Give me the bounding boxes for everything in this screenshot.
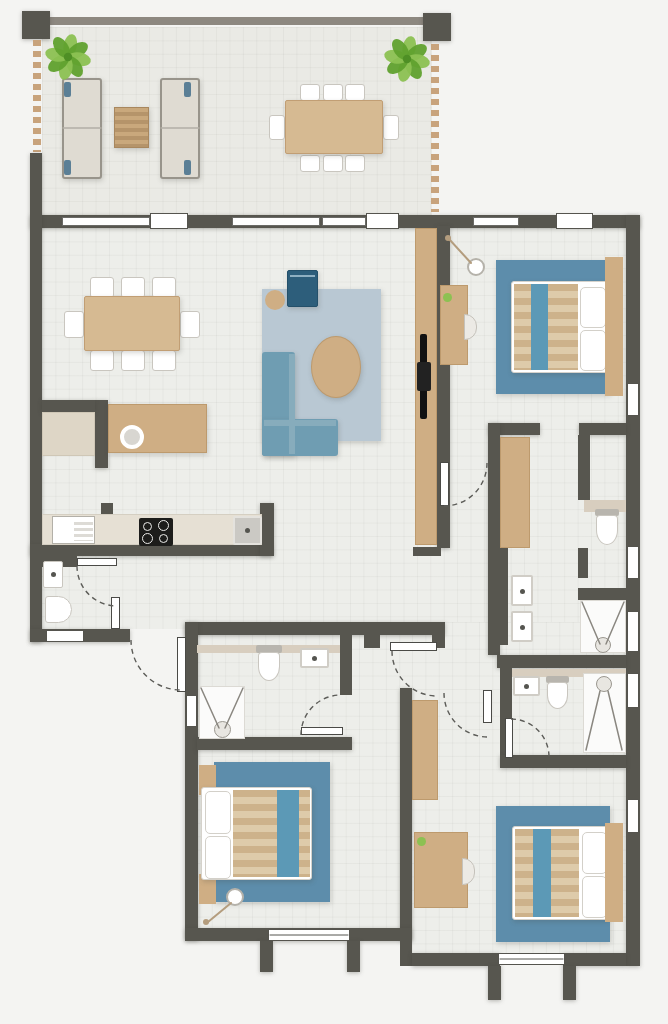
bathroom1-shower-head (595, 637, 611, 653)
terrace-dining-chair-6 (345, 155, 365, 172)
terrace-dining-table (285, 100, 383, 154)
dining-chair-5 (121, 350, 145, 371)
sofa-cushion-edge-horizontal (264, 420, 336, 426)
bedroom3-headboard (605, 823, 623, 922)
dining-chair-2 (121, 277, 145, 298)
outdoor-sofa-right-pillow-bottom (184, 160, 191, 175)
bedroom1-pillow-2 (580, 330, 606, 371)
lower-wing-left-wall (185, 622, 198, 940)
terrace-dining-chair-1 (300, 84, 320, 101)
dining-chair-left (64, 311, 84, 338)
terrace-railing-left-dashed (33, 40, 41, 152)
porch-stub-3 (488, 966, 501, 1000)
left-wall (30, 153, 42, 642)
window-2 (366, 213, 399, 229)
glazing-4 (473, 217, 519, 226)
bedroom3-throw (533, 829, 551, 917)
counter-end-wall (260, 503, 274, 556)
bathroom1-toilet (596, 515, 618, 545)
outdoor-sofa-left-pillow-top (64, 82, 71, 97)
terrace-dining-chair-5 (323, 155, 343, 172)
porch-stub-1 (260, 941, 273, 972)
bathroom3-sink-faucet (524, 684, 529, 689)
terrace-top-rail (30, 17, 450, 25)
bedroom1-throw (531, 284, 548, 370)
bathroom1-bottom-wall (497, 655, 626, 668)
bedroom3-wardrobe (412, 700, 438, 800)
bedroom3-door-leaf (483, 690, 492, 723)
wc-toilet (45, 596, 72, 623)
bathroom3-door-leaf (505, 718, 513, 758)
kitchen-l-wall-horizontal (42, 400, 95, 412)
terrace-dining-chair-3 (345, 84, 365, 101)
dining-chair-3 (152, 277, 176, 298)
bathroom1-wc-wall (578, 435, 590, 500)
burner-3 (142, 533, 153, 544)
glazing-3 (322, 217, 366, 226)
terrace-dining-chair-right (383, 115, 399, 140)
bedroom3-bottom-wall-left (412, 953, 500, 966)
dining-chair-6 (152, 350, 176, 371)
bedroom3-pillow-2 (582, 876, 607, 918)
bathroom1-sink-1-faucet (520, 589, 525, 594)
bathroom2-door-leaf (301, 727, 343, 735)
bedroom2-lamp-tip (203, 919, 209, 925)
bedroom2-lamp (226, 888, 244, 906)
entry-door-arc (131, 640, 181, 690)
bedroom1-headboard (605, 257, 623, 396)
terrace-dining-chair-4 (300, 155, 320, 172)
bedroom1-desk-plant (443, 293, 452, 302)
bathroom2-shower-head (214, 721, 231, 738)
window-3 (556, 213, 593, 229)
wc-basin-faucet (51, 572, 56, 577)
bedroom2-right-wall (400, 688, 412, 940)
right-wall (626, 215, 640, 966)
window-right-5 (627, 799, 639, 833)
bathroom2-right-wall (340, 622, 352, 695)
corridor-door-leaf (440, 462, 449, 506)
bedroom3-bottom-wall-right (563, 953, 626, 966)
bathroom3-toilet (547, 682, 568, 709)
dining-chair-1 (90, 277, 114, 298)
tv-mount (417, 362, 431, 391)
bathroom1-closet (500, 437, 530, 548)
sofa-cushion-edge-vertical (289, 354, 295, 454)
bathroom2-sink-faucet (312, 656, 317, 661)
outdoor-sofa-right (160, 78, 200, 179)
bathroom3-bottom-wall (500, 755, 626, 768)
window-wc-bottom (46, 630, 84, 642)
living-coffee-table (311, 336, 361, 398)
bedroom1-lamp-tip (445, 235, 451, 241)
hall-wall-cap (413, 547, 441, 556)
window-entry-left (186, 695, 197, 727)
kitchen-sink-faucet (245, 528, 250, 533)
bedroom3-pillow-1 (582, 832, 607, 874)
terrace-post-left (22, 11, 50, 39)
entry-door-leaf (177, 637, 186, 692)
bathroom1-shower-wall (578, 588, 626, 600)
dining-chair-4 (90, 350, 114, 371)
bedroom2-throw (277, 790, 299, 877)
glazing-1 (62, 217, 150, 226)
bathroom1-wc-pier (578, 548, 588, 578)
burner-2 (158, 520, 169, 531)
terrace-dining-chair-2 (323, 84, 343, 101)
terrace-dining-chair-left (269, 115, 285, 140)
bedroom1-bottom-wall-right (579, 423, 626, 435)
corner-counter (42, 412, 95, 456)
dining-table (84, 296, 180, 351)
burner-1 (143, 522, 152, 531)
bedroom1-lamp (467, 258, 485, 276)
bathroom3-shower-head (596, 676, 612, 692)
burner-4 (159, 534, 168, 543)
wc-door-leaf-open (111, 597, 120, 629)
porch-stub-2 (347, 941, 360, 972)
fridge-vents (74, 519, 93, 541)
bedroom2-pillow-1 (205, 791, 231, 834)
glazing-2 (232, 217, 320, 226)
window-right-1 (627, 383, 639, 416)
bathroom2-toilet (258, 652, 280, 681)
bedroom1-pillow-1 (580, 287, 606, 328)
bedroom2-pillow-2 (205, 836, 231, 879)
terrace-railing-right-dashed (431, 44, 439, 212)
sliding-door-bedroom2 (268, 929, 350, 941)
bathroom1-vanity-wall (500, 545, 508, 645)
outdoor-coffee-table (114, 107, 149, 148)
bedroom3-desk-plant (417, 837, 426, 846)
bathroom1-sink-2-faucet (520, 625, 525, 630)
lower-wing-top-wall (185, 622, 445, 635)
bathroom1-left-wall (488, 423, 500, 655)
outdoor-sofa-left-pillow-bottom (64, 160, 71, 175)
island-sink (120, 425, 144, 449)
bedroom2-door-leaf (390, 642, 437, 651)
window-right-4 (627, 673, 639, 708)
wc-door-leaf-closed (77, 558, 117, 566)
dining-chair-right (180, 311, 200, 338)
window-1 (150, 213, 188, 229)
window-right-2 (627, 546, 639, 579)
living-armchair-seam (290, 275, 315, 277)
lower-wing-pier (364, 622, 380, 648)
sliding-door-bedroom3 (498, 953, 565, 965)
kitchen-l-wall-vertical (95, 400, 108, 468)
outdoor-sofa-right-pillow-top (184, 82, 191, 97)
terrace-post-right (423, 13, 451, 41)
window-right-3 (627, 611, 639, 652)
floor-plan-canvas (0, 0, 668, 1024)
living-side-table (265, 290, 285, 310)
bedroom-jog-wall (400, 928, 412, 966)
porch-stub-4 (563, 966, 576, 1000)
